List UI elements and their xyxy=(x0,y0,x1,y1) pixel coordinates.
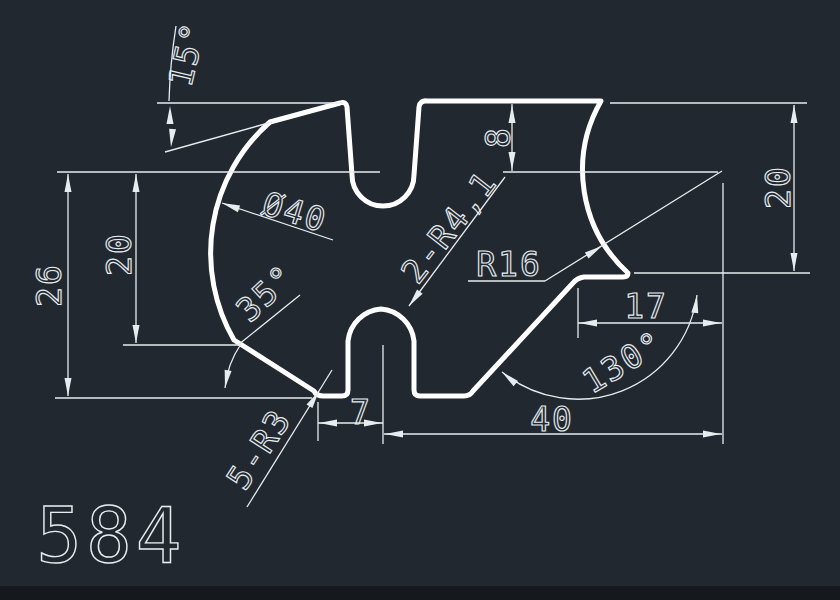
dim-text: 35° xyxy=(229,256,304,329)
dim-text: 130° xyxy=(575,323,670,401)
dim-text: Ø40 xyxy=(258,184,332,240)
arrowhead xyxy=(585,243,604,258)
arrowhead xyxy=(791,105,798,123)
dim-text: R16 xyxy=(476,245,542,284)
dimension-angle-35[interactable]: 35° xyxy=(222,256,304,388)
leader-line xyxy=(545,171,722,281)
dim-text: 8 xyxy=(479,126,518,148)
arrowhead xyxy=(133,325,140,343)
part-number: 584 xyxy=(36,491,185,580)
dim-text: 26 xyxy=(30,263,69,307)
bottom-strip xyxy=(0,586,840,600)
arrowhead xyxy=(791,253,798,271)
dim-text: 20 xyxy=(759,165,798,209)
dim-text: 20 xyxy=(100,232,139,276)
dimension-angle-15[interactable]: 15° xyxy=(157,18,343,152)
dim-text: 40 xyxy=(530,400,574,439)
dimension-depth-8[interactable]: 8 xyxy=(479,104,719,172)
arrowhead xyxy=(406,290,422,309)
arrowhead xyxy=(703,431,721,438)
arrowhead xyxy=(65,378,72,396)
dimension-height-20-right[interactable]: 20 xyxy=(610,103,810,273)
arrowhead xyxy=(691,295,700,314)
drawing-canvas[interactable]: 15° Ø40 26 20 35° 5-R3 xyxy=(0,0,840,600)
dimension-angle-130[interactable]: 130° xyxy=(500,295,701,402)
arrowhead xyxy=(509,105,516,123)
arrowhead xyxy=(221,200,240,212)
arrowhead xyxy=(579,320,597,327)
arrowhead xyxy=(65,174,72,192)
arrowhead xyxy=(168,129,177,148)
arrowhead xyxy=(385,431,403,438)
arrowhead xyxy=(222,370,232,389)
arrowhead xyxy=(319,420,337,427)
dim-text: 7 xyxy=(350,393,372,432)
dim-text: 17 xyxy=(624,287,668,326)
arrowhead xyxy=(703,320,721,327)
arrowhead xyxy=(133,174,140,192)
dimension-diameter-40[interactable]: Ø40 xyxy=(221,184,333,240)
arrowhead xyxy=(167,106,174,124)
dim-text: 5-R3 xyxy=(219,402,299,497)
dim-text: 15° xyxy=(161,18,214,91)
arrowhead xyxy=(509,152,516,170)
